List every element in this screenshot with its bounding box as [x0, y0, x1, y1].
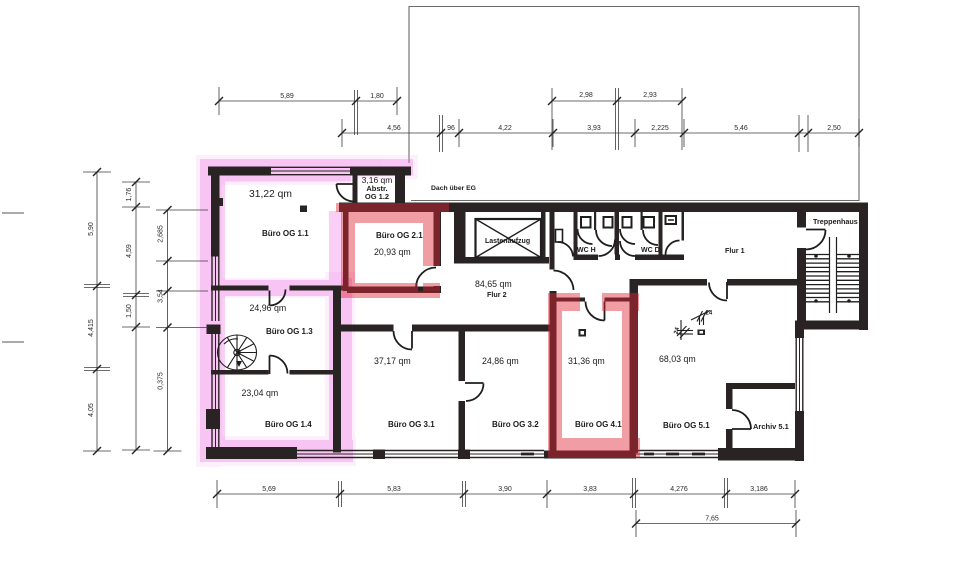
svg-text:Büro OG 1.4: Büro OG 1.4 [265, 420, 312, 429]
svg-text:24: 24 [706, 311, 713, 317]
svg-text:Büro OG 4.1: Büro OG 4.1 [575, 420, 622, 429]
svg-text:Büro OG 1.3: Büro OG 1.3 [266, 327, 313, 336]
svg-text:1,80: 1,80 [370, 93, 384, 100]
svg-text:5,69: 5,69 [262, 486, 276, 493]
svg-text:5,89: 5,89 [280, 93, 294, 100]
svg-text:4,59: 4,59 [126, 244, 133, 258]
svg-text:4,276: 4,276 [670, 486, 688, 493]
svg-text:3,186: 3,186 [750, 486, 768, 493]
svg-text:3,93: 3,93 [587, 125, 601, 132]
svg-text:Büro OG 3.1: Büro OG 3.1 [388, 420, 435, 429]
svg-text:4,415: 4,415 [88, 319, 95, 337]
svg-text:Büro OG 3.2: Büro OG 3.2 [492, 420, 539, 429]
svg-text:1,76: 1,76 [126, 188, 133, 202]
svg-text:WC D: WC D [641, 247, 660, 254]
svg-text:5,90: 5,90 [88, 222, 95, 236]
svg-text:Dach über EG: Dach über EG [431, 185, 476, 192]
svg-text:Archiv 5.1: Archiv 5.1 [753, 422, 789, 431]
svg-text:68,03 qm: 68,03 qm [659, 354, 696, 364]
svg-text:84,65 qm: 84,65 qm [475, 279, 512, 289]
svg-text:2,225: 2,225 [651, 125, 669, 132]
svg-text:Flur 1: Flur 1 [725, 246, 745, 255]
svg-text:3,54: 3,54 [158, 289, 165, 303]
svg-text:2,685: 2,685 [158, 225, 165, 243]
svg-text:20,93 qm: 20,93 qm [374, 247, 411, 257]
svg-text:24,86 qm: 24,86 qm [482, 356, 519, 366]
svg-text:Lastenaufzug: Lastenaufzug [485, 238, 530, 245]
svg-text:2,98: 2,98 [579, 92, 593, 99]
svg-text:2,50: 2,50 [827, 125, 841, 132]
svg-text:5,46: 5,46 [734, 125, 748, 132]
svg-text:31,22 qm: 31,22 qm [249, 189, 292, 200]
svg-text:OG 1.2: OG 1.2 [365, 192, 389, 201]
svg-text:1,50: 1,50 [126, 304, 133, 318]
svg-text:3,90: 3,90 [498, 486, 512, 493]
svg-text:Büro OG 1.1: Büro OG 1.1 [262, 229, 309, 238]
svg-text:4,22: 4,22 [498, 125, 512, 132]
svg-text:3,83: 3,83 [583, 486, 597, 493]
svg-text:Büro OG 5.1: Büro OG 5.1 [663, 421, 710, 430]
svg-text:24,96 qm: 24,96 qm [250, 303, 287, 313]
svg-text:0,375: 0,375 [158, 372, 165, 390]
svg-text:37,17 qm: 37,17 qm [374, 356, 411, 366]
svg-text:4,56: 4,56 [387, 125, 401, 132]
svg-text:31,36 qm: 31,36 qm [568, 356, 605, 366]
svg-text:23,04 qm: 23,04 qm [242, 388, 279, 398]
svg-text:4,05: 4,05 [88, 403, 95, 417]
svg-text:Flur 2: Flur 2 [487, 290, 507, 299]
svg-text:5,83: 5,83 [387, 486, 401, 493]
svg-text:2,93: 2,93 [643, 92, 657, 99]
svg-text:WC H: WC H [577, 247, 596, 254]
svg-text:Büro OG 2.1: Büro OG 2.1 [376, 231, 423, 240]
svg-text:96: 96 [447, 125, 455, 132]
svg-text:Treppenhaus: Treppenhaus [813, 217, 858, 226]
svg-text:7,65: 7,65 [705, 516, 719, 523]
